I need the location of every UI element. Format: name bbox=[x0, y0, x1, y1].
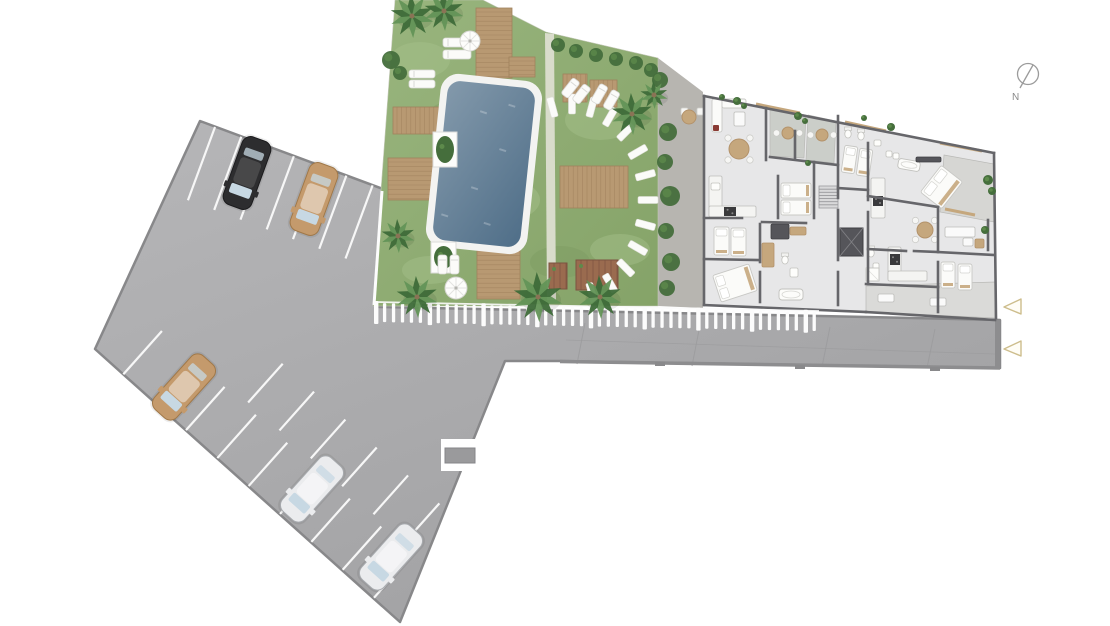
white-planter bbox=[433, 132, 457, 167]
wood-deck bbox=[560, 166, 628, 208]
fence-slat bbox=[490, 305, 493, 324]
curb-stub bbox=[795, 365, 805, 369]
wood-deck bbox=[477, 247, 520, 299]
potted-plant bbox=[734, 98, 738, 102]
fence-slat bbox=[392, 303, 395, 322]
fence-slat bbox=[383, 303, 386, 322]
toilet bbox=[858, 129, 865, 140]
sink bbox=[886, 151, 892, 157]
fence-slat bbox=[669, 309, 672, 328]
potted-plant bbox=[861, 115, 867, 121]
fence-slat bbox=[651, 309, 654, 328]
sun-lounger bbox=[409, 70, 435, 78]
furniture bbox=[878, 294, 894, 302]
single-bed bbox=[781, 200, 811, 215]
entrance-arrow-icon bbox=[1004, 341, 1021, 356]
apartment-building-floorplan bbox=[704, 94, 996, 320]
dining-table bbox=[725, 135, 753, 163]
chair bbox=[747, 157, 753, 163]
compass-north-label: N bbox=[1012, 92, 1019, 103]
elevator bbox=[840, 228, 863, 256]
cafe-table bbox=[682, 110, 696, 124]
fence-slat bbox=[508, 306, 511, 325]
bush-highlight bbox=[591, 50, 597, 56]
fence-slat bbox=[625, 308, 628, 327]
chair bbox=[725, 157, 731, 163]
chair bbox=[747, 135, 753, 141]
fence-slat bbox=[437, 304, 440, 323]
fence-slat bbox=[741, 311, 744, 330]
fence-slat bbox=[786, 311, 789, 330]
site-plan-canvas: N bbox=[0, 0, 1110, 626]
fence-slat bbox=[795, 312, 798, 331]
chair bbox=[912, 236, 918, 242]
site-plan-page: N bbox=[0, 0, 1110, 626]
potted-plant bbox=[795, 113, 799, 117]
potted-plant bbox=[862, 116, 865, 119]
chair bbox=[830, 132, 836, 138]
bush-highlight bbox=[661, 282, 668, 289]
fence-slat bbox=[401, 304, 404, 323]
fence-slat bbox=[759, 311, 762, 330]
entrance-markers bbox=[1004, 299, 1021, 356]
potted-plant bbox=[982, 227, 986, 231]
single-bed bbox=[714, 227, 729, 255]
parking-structure bbox=[445, 448, 475, 463]
entrance-arrow-icon bbox=[1004, 299, 1021, 314]
fence-slat bbox=[455, 305, 458, 324]
fence-slat bbox=[732, 310, 735, 329]
bush-highlight bbox=[553, 40, 559, 46]
furniture bbox=[945, 227, 975, 237]
road-end-cap bbox=[995, 320, 1000, 369]
potted-plant bbox=[802, 118, 808, 124]
accent-pillow bbox=[713, 125, 719, 131]
fence-slat bbox=[517, 306, 520, 325]
fence-slat bbox=[634, 308, 637, 327]
fence-post bbox=[804, 310, 808, 333]
potted-plant bbox=[742, 104, 745, 107]
fence-post bbox=[750, 309, 754, 332]
furniture bbox=[771, 224, 789, 239]
fence-slat bbox=[714, 310, 717, 329]
wood-planter bbox=[549, 263, 567, 289]
sun-lounger bbox=[443, 50, 471, 59]
fence-post bbox=[643, 307, 647, 330]
parasol bbox=[460, 31, 480, 51]
bathtub bbox=[779, 289, 803, 300]
wood-deck bbox=[509, 57, 535, 77]
sink bbox=[790, 268, 798, 277]
single-bed bbox=[781, 183, 811, 198]
fence-slat bbox=[446, 304, 449, 323]
bush-highlight bbox=[646, 65, 652, 71]
bush-highlight bbox=[661, 125, 669, 133]
wall bbox=[914, 251, 938, 252]
fence-slat bbox=[687, 309, 690, 328]
bush-highlight bbox=[663, 189, 672, 198]
bush-highlight bbox=[384, 53, 392, 61]
potted-plant bbox=[989, 188, 993, 192]
fence-post bbox=[696, 308, 700, 331]
chair bbox=[912, 217, 918, 223]
fence-post bbox=[481, 303, 485, 326]
chair bbox=[807, 132, 813, 138]
curb-stub bbox=[930, 367, 940, 371]
chair bbox=[725, 135, 731, 141]
fence-slat bbox=[580, 307, 583, 326]
fence-slat bbox=[777, 311, 780, 330]
wall bbox=[704, 259, 758, 260]
fence-slat bbox=[464, 305, 467, 324]
wall bbox=[762, 222, 806, 223]
furniture bbox=[734, 112, 745, 126]
sun-lounger bbox=[409, 80, 435, 88]
furniture bbox=[790, 227, 806, 235]
single-bed bbox=[958, 264, 972, 290]
potted-plant bbox=[803, 119, 806, 122]
stove bbox=[724, 207, 736, 216]
sun-lounger bbox=[438, 255, 447, 274]
sink bbox=[874, 140, 881, 146]
toilet bbox=[845, 127, 852, 138]
single-bed bbox=[731, 228, 746, 256]
stepping-stone bbox=[638, 197, 658, 204]
potted-plant bbox=[719, 94, 725, 100]
fence-slat bbox=[678, 309, 681, 328]
staircase bbox=[819, 186, 838, 208]
chair bbox=[773, 130, 779, 136]
bush-highlight bbox=[571, 46, 577, 52]
fence-slat bbox=[660, 309, 663, 328]
fence-slat bbox=[571, 307, 574, 326]
curb-stub bbox=[655, 362, 665, 366]
sink bbox=[711, 183, 720, 190]
bush-highlight bbox=[395, 68, 401, 74]
north-compass: N bbox=[1012, 64, 1039, 104]
bush-highlight bbox=[659, 156, 666, 163]
fence-slat bbox=[472, 305, 475, 324]
sun-lounger bbox=[450, 255, 459, 274]
bush-highlight bbox=[631, 58, 637, 64]
parasol bbox=[445, 277, 467, 299]
potted-plant bbox=[806, 161, 809, 164]
stove bbox=[890, 254, 900, 265]
single-bed bbox=[941, 262, 955, 288]
potted-plant bbox=[985, 177, 990, 182]
fence-slat bbox=[616, 308, 619, 327]
potted-plant bbox=[741, 103, 747, 109]
fence-slat bbox=[562, 307, 565, 326]
furniture bbox=[963, 238, 973, 246]
garden-area bbox=[373, 0, 704, 308]
bush-highlight bbox=[654, 74, 661, 81]
bush-highlight bbox=[664, 255, 672, 263]
fence-slat bbox=[723, 310, 726, 329]
wood-deck bbox=[476, 8, 512, 78]
fence-slat bbox=[499, 306, 502, 325]
bush-highlight bbox=[660, 225, 667, 232]
furniture bbox=[888, 271, 927, 281]
chair bbox=[796, 130, 802, 136]
potted-plant bbox=[888, 124, 892, 128]
fence-slat bbox=[705, 310, 708, 329]
fence-slat bbox=[813, 312, 816, 331]
sink bbox=[893, 153, 899, 159]
furniture bbox=[916, 157, 941, 162]
toilet bbox=[782, 253, 789, 264]
furniture bbox=[762, 243, 774, 267]
fence-slat bbox=[768, 311, 771, 330]
potted-plant bbox=[805, 160, 811, 166]
bush-highlight bbox=[611, 54, 617, 60]
furniture bbox=[975, 239, 984, 248]
potted-plant bbox=[720, 95, 723, 98]
